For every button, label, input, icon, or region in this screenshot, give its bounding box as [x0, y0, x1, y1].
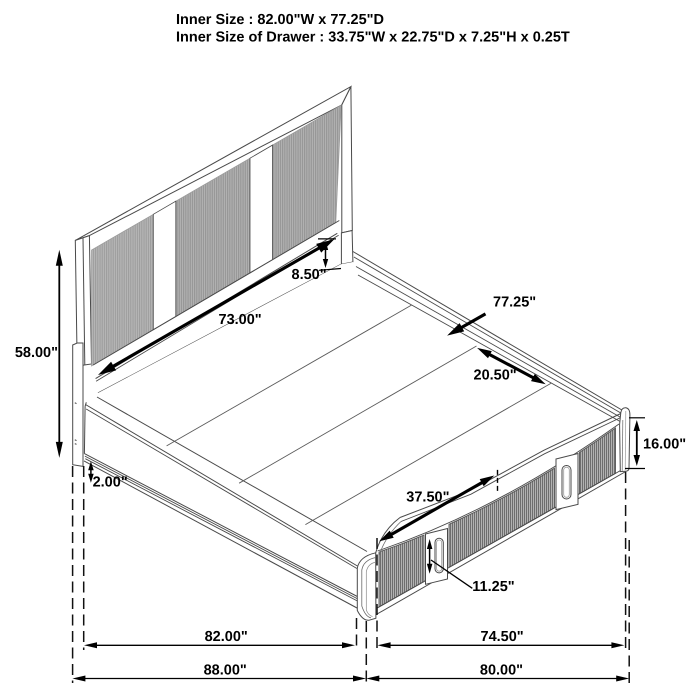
svg-text:8.50": 8.50" — [292, 267, 327, 283]
svg-text:82.00": 82.00" — [205, 629, 248, 645]
svg-text:77.25": 77.25" — [493, 295, 536, 311]
svg-text:80.00": 80.00" — [480, 663, 523, 679]
svg-text:20.50": 20.50" — [474, 368, 517, 384]
svg-text:16.00": 16.00" — [643, 437, 686, 453]
svg-text:88.00": 88.00" — [204, 663, 247, 679]
svg-text:Inner Size of Drawer : 33.75"W: Inner Size of Drawer : 33.75"W x 22.75"D… — [176, 30, 570, 46]
svg-text:58.00": 58.00" — [15, 345, 58, 361]
svg-text:2.00": 2.00" — [93, 474, 128, 490]
svg-text:73.00": 73.00" — [219, 312, 262, 328]
svg-text:Inner Size : 82.00"W x 77.25"D: Inner Size : 82.00"W x 77.25"D — [176, 12, 384, 28]
svg-text:74.50": 74.50" — [481, 629, 524, 645]
svg-text:37.50": 37.50" — [406, 489, 449, 505]
svg-text:11.25": 11.25" — [472, 579, 514, 595]
